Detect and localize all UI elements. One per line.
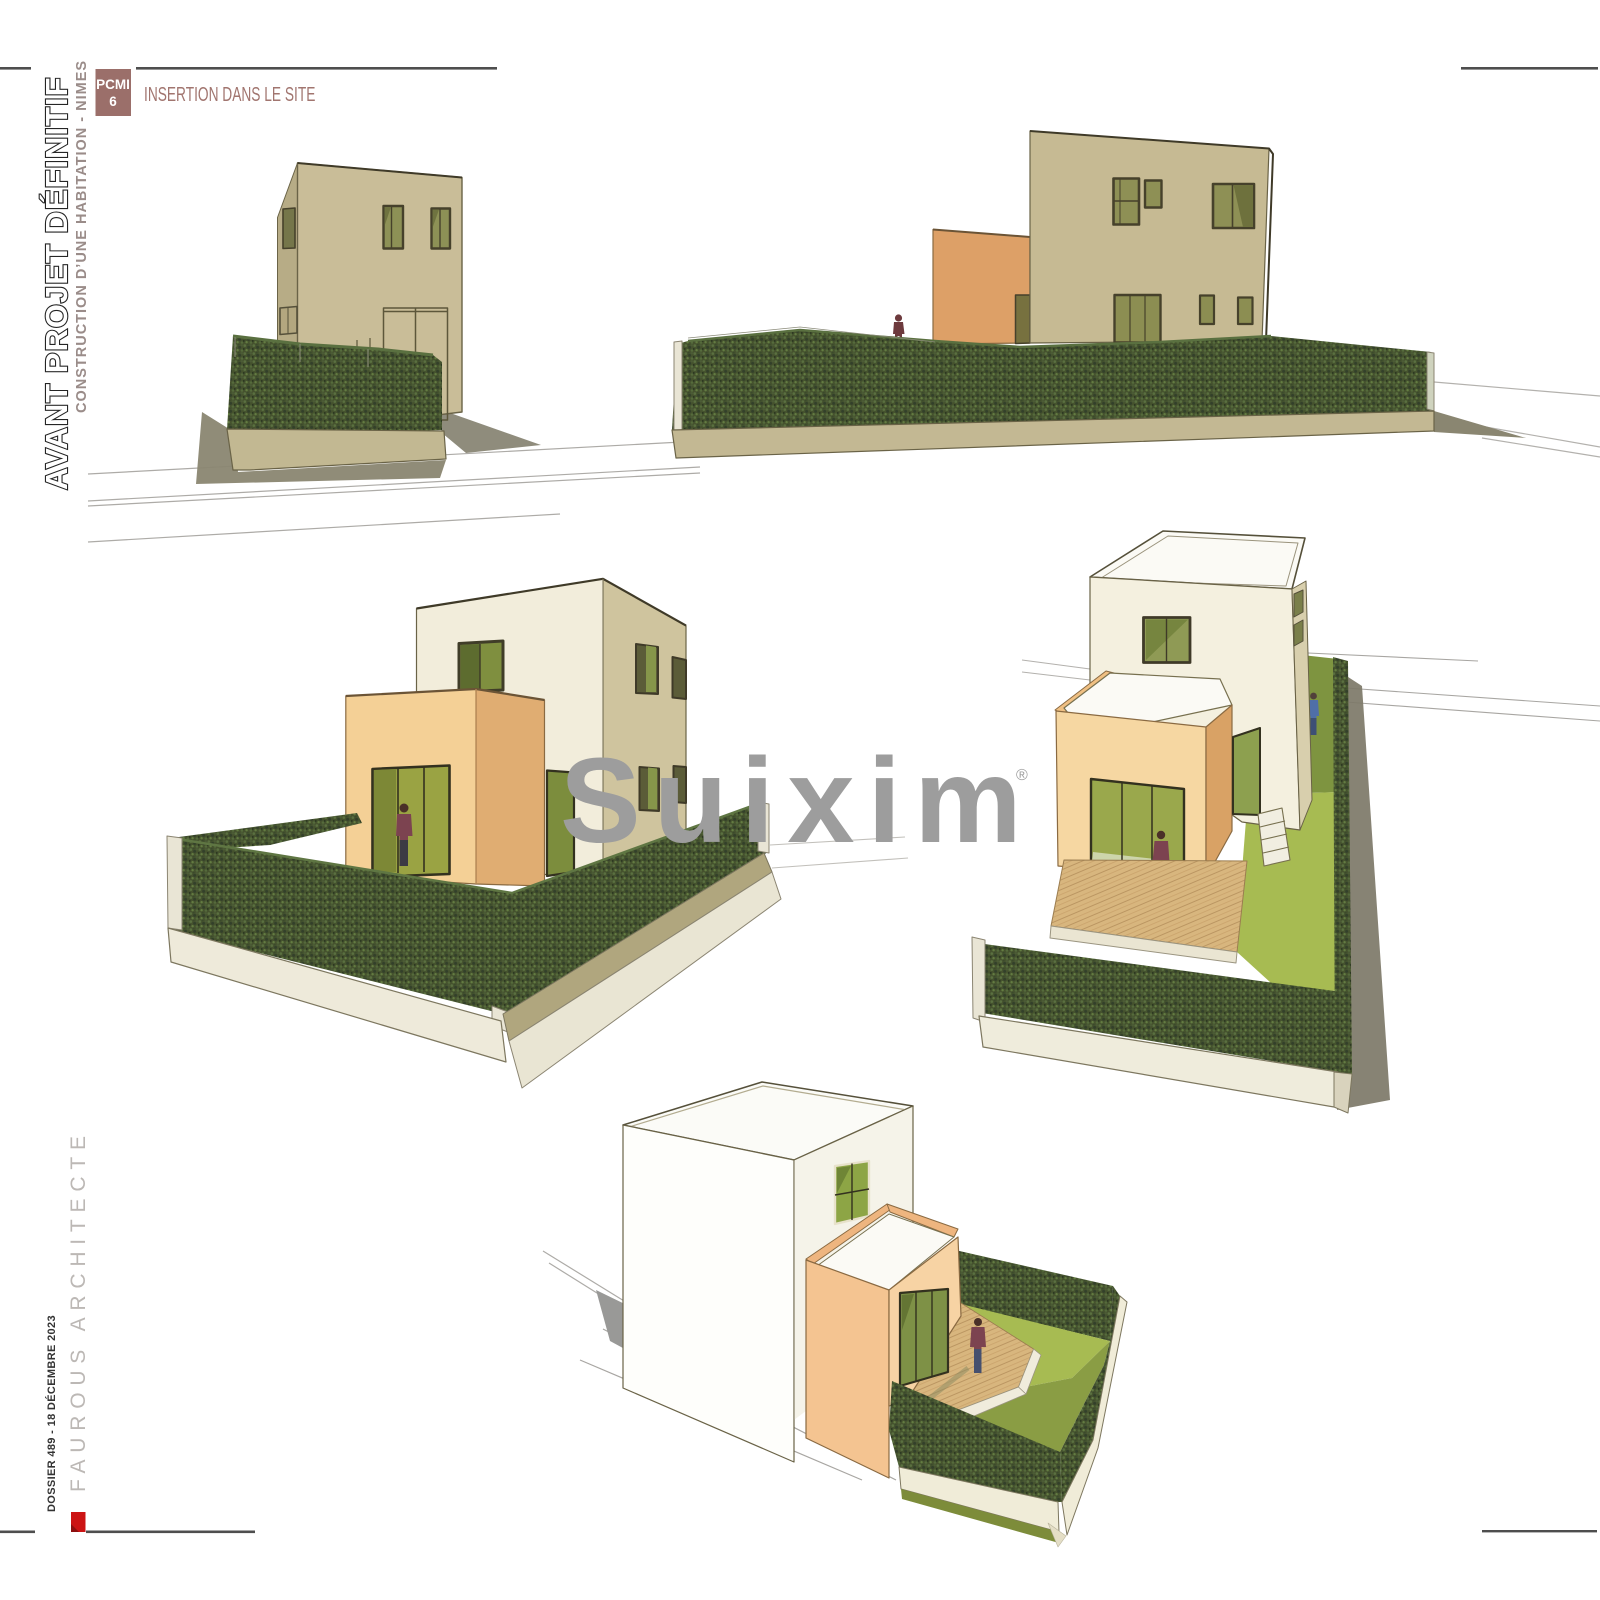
- svg-text:FAUROUS ARCHITECTE: FAUROUS ARCHITECTE: [67, 1129, 90, 1492]
- svg-text:AVANT PROJET DÉFINITIF: AVANT PROJET DÉFINITIF: [39, 76, 74, 490]
- svg-text:PCMI: PCMI: [96, 77, 130, 92]
- svg-text:INSERTION DANS LE SITE: INSERTION DANS LE SITE: [144, 82, 315, 105]
- svg-text:DOSSIER 489 - 18 DÉCEMBRE 2023: DOSSIER 489 - 18 DÉCEMBRE 2023: [45, 1315, 58, 1512]
- svg-text:6: 6: [109, 94, 117, 109]
- svg-text:CONSTRUCTION D’UNE HABITATION: CONSTRUCTION D’UNE HABITATION - NIMES: [74, 60, 90, 413]
- svg-text:®: ®: [1016, 767, 1028, 784]
- svg-text:Suixim: Suixim: [560, 732, 1035, 868]
